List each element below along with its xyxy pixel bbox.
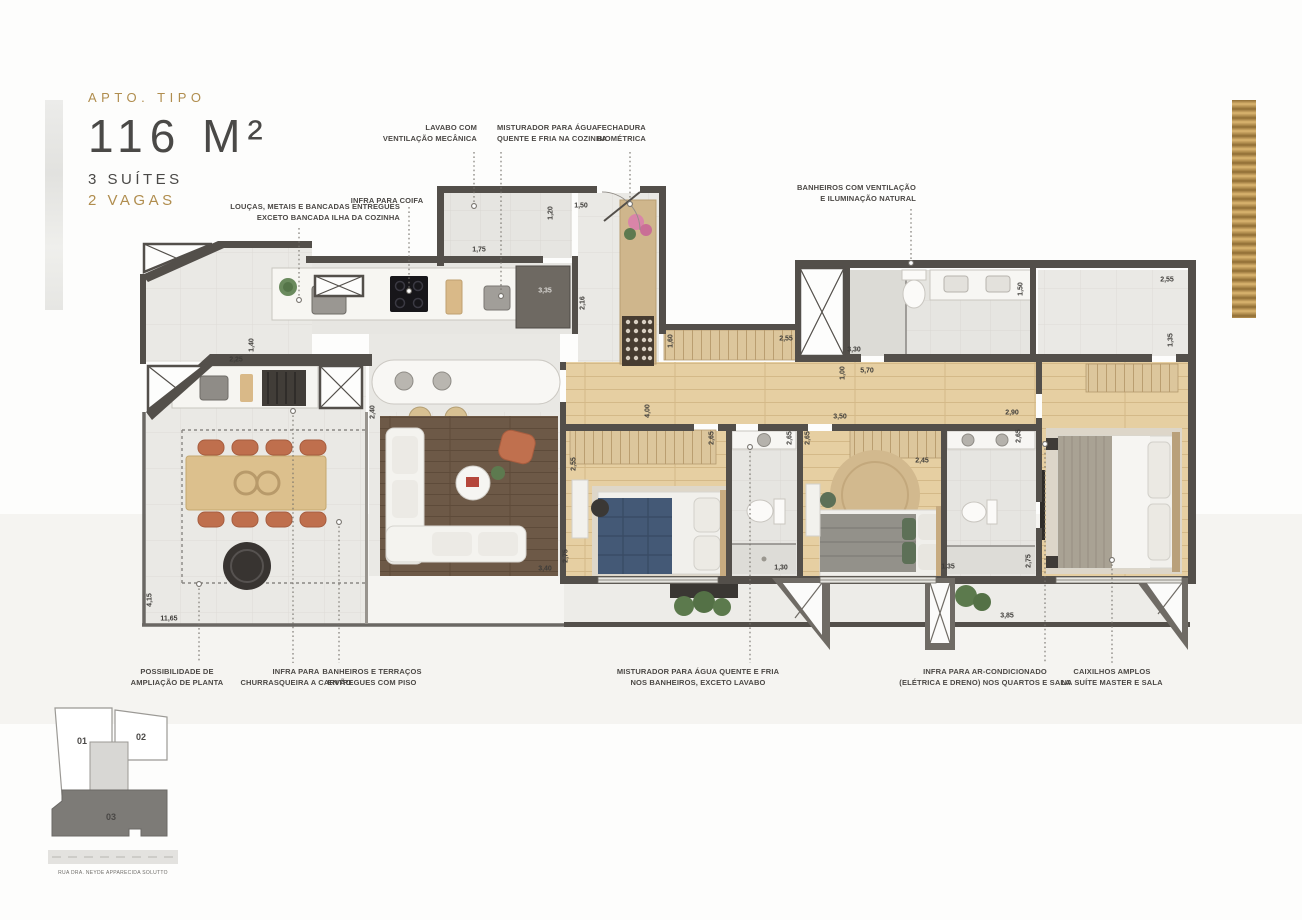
leader-dot	[1043, 442, 1048, 447]
leader-dot	[628, 202, 633, 207]
leader-dot	[499, 294, 504, 299]
leader-dot	[909, 261, 914, 266]
leader-dot	[748, 445, 753, 450]
leader-dot	[291, 409, 296, 414]
leader-dot	[407, 289, 412, 294]
leader-dot	[472, 204, 477, 209]
leader-dot	[337, 520, 342, 525]
leader-dot	[297, 298, 302, 303]
leader-dot	[1110, 558, 1115, 563]
leader-dot	[197, 582, 202, 587]
floorplan-page: APTO. TIPO 116 M² 3 SUÍTES 2 VAGAS	[0, 0, 1302, 920]
callout-leaders	[0, 0, 1302, 920]
